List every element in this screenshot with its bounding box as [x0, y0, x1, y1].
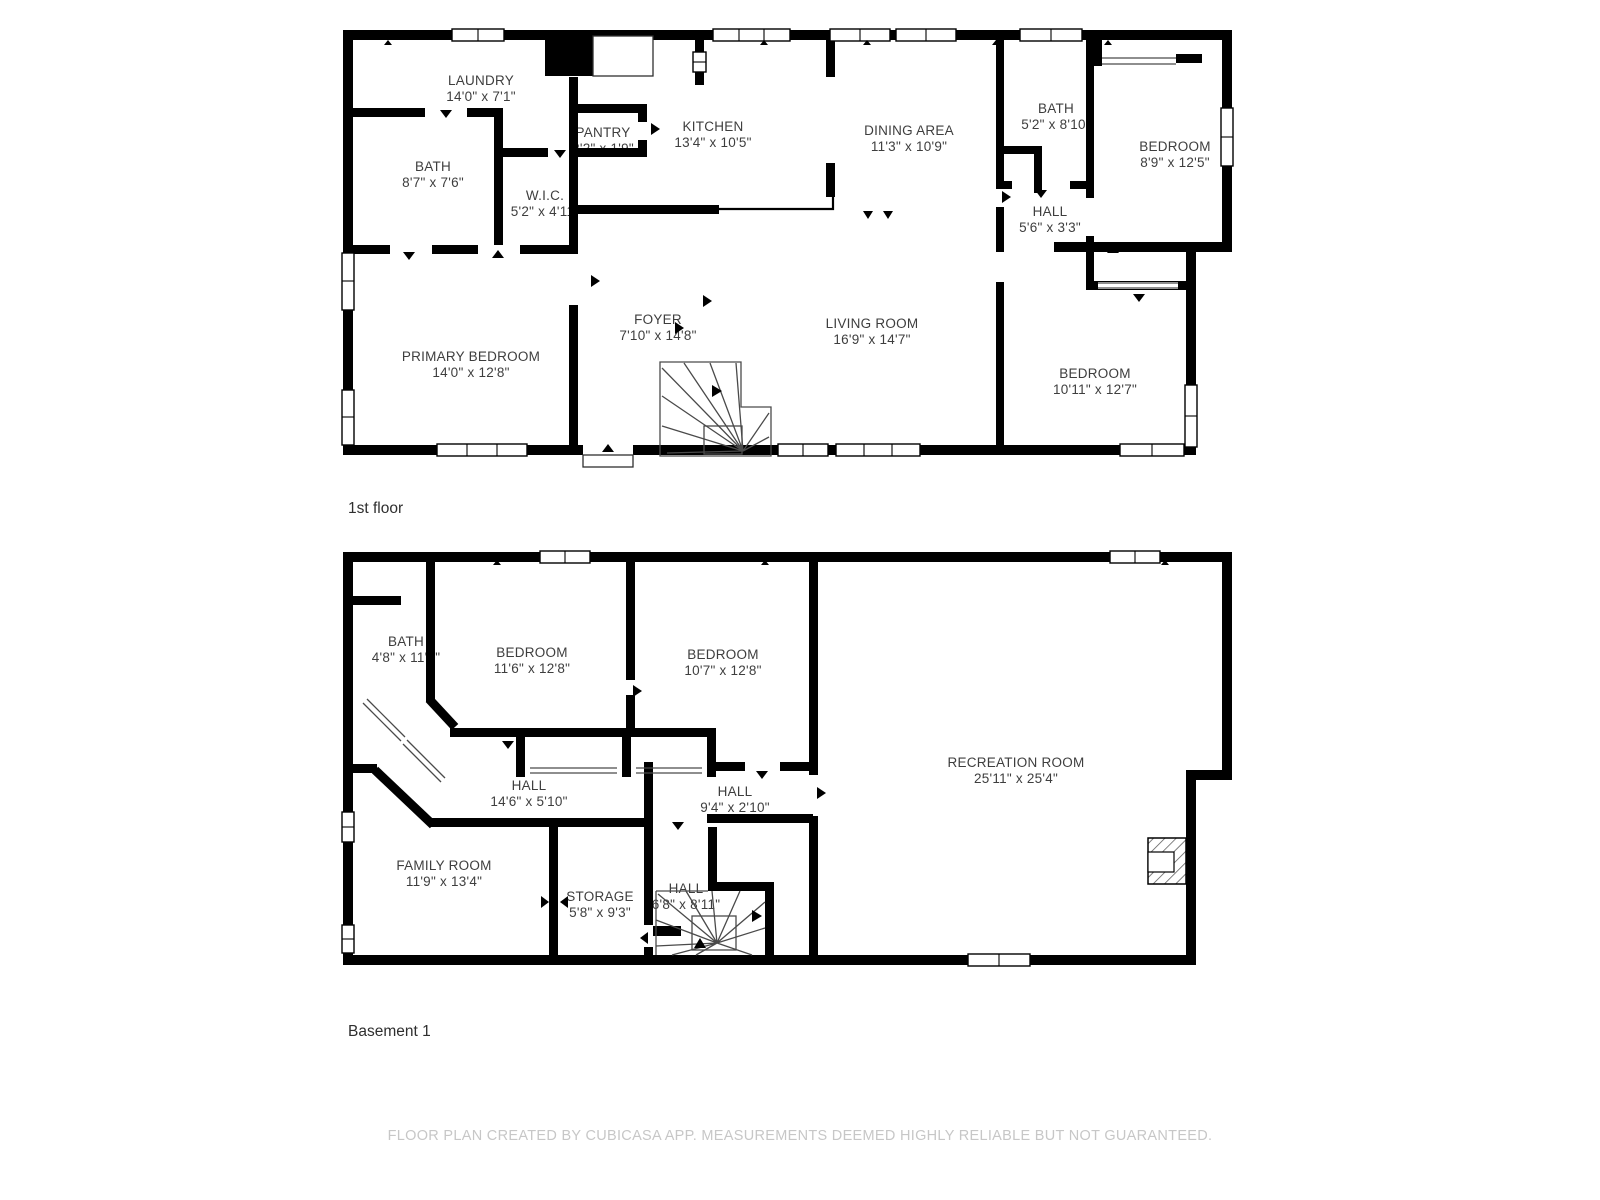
room-label-bsmt-bedroom-right: BEDROOM 10'7" x 12'8" [684, 647, 761, 679]
room-label-hall-1: HALL 5'6" x 3'3" [1019, 204, 1081, 236]
chimney-icon [1148, 838, 1186, 884]
floor-plan-drawing [0, 0, 1600, 1200]
room-label-laundry: LAUNDRY 14'0" x 7'1" [446, 73, 516, 105]
room-label-bsmt-hall-stairs: HALL 6'8" x 8'11" [652, 881, 721, 913]
room-label-foyer: FOYER 7'10" x 14'8" [619, 312, 696, 344]
room-label-bsmt-hall-mid: HALL 9'4" x 2'10" [700, 784, 770, 816]
footer-disclaimer: FLOOR PLAN CREATED BY CUBICASA APP. MEAS… [0, 1128, 1600, 1144]
floor-title-basement-1: Basement 1 [348, 1023, 431, 1041]
room-label-kitchen: KITCHEN 13'4" x 10'5" [674, 119, 751, 151]
room-label-family-room: FAMILY ROOM 11'9" x 13'4" [396, 858, 491, 890]
room-label-bath-1: BATH 8'7" x 7'6" [402, 159, 464, 191]
room-label-bsmt-bedroom-left: BEDROOM 11'6" x 12'8" [494, 645, 570, 677]
room-label-primary-bedroom: PRIMARY BEDROOM 14'0" x 12'8" [402, 349, 540, 381]
basement-walls [343, 552, 1232, 965]
first-floor-stairs-icon [660, 362, 771, 456]
room-label-bath-2: BATH 5'2" x 8'10" [1021, 101, 1091, 133]
room-label-pantry: PANTRY 2'2" x 1'9" [572, 125, 634, 157]
room-label-bsmt-bath: BATH 4'8" x 11'1" [372, 634, 441, 666]
room-label-bedroom-1: BEDROOM 8'9" x 12'5" [1139, 139, 1211, 171]
room-label-storage: STORAGE 5'8" x 9'3" [566, 889, 634, 921]
room-label-bsmt-hall-left: HALL 14'6" x 5'10" [490, 778, 567, 810]
basement-closet-doors [363, 699, 702, 782]
room-label-dining-area: DINING AREA 11'3" x 10'9" [864, 123, 954, 155]
floor-title-1st-floor: 1st floor [348, 500, 403, 518]
room-label-wic: W.I.C. 5'2" x 4'11" [511, 188, 580, 220]
room-label-recreation-room: RECREATION ROOM 25'11" x 25'4" [947, 755, 1084, 787]
room-label-bedroom-2: BEDROOM 10'11" x 12'7" [1053, 366, 1137, 398]
basement-plan [342, 551, 1232, 966]
room-label-living-room: LIVING ROOM 16'9" x 14'7" [826, 316, 919, 348]
floor-plan-page: { "page": {"width": 1600, "height": 1200… [0, 0, 1600, 1200]
